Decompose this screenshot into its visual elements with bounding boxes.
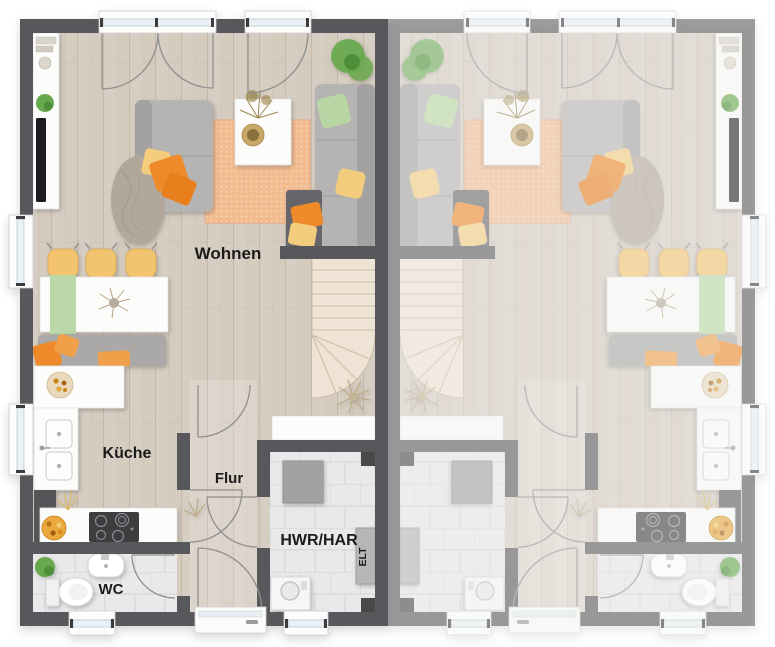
room-label-hallway: Flur [215, 470, 243, 487]
unit-right-mirrored [387, 11, 766, 635]
room-label-living: Wohnen [195, 244, 262, 263]
room-label-utility: HWR/HAR [280, 532, 358, 549]
floorplan-duplex: Wohnen Küche Flur HWR/HAR ELT WC [0, 0, 775, 647]
room-label-wc: WC [99, 581, 124, 598]
floorplan-svg: Wohnen Küche Flur HWR/HAR ELT WC [0, 0, 775, 647]
room-label-kitchen: Küche [103, 445, 152, 462]
room-label-electrical: ELT [357, 547, 369, 567]
